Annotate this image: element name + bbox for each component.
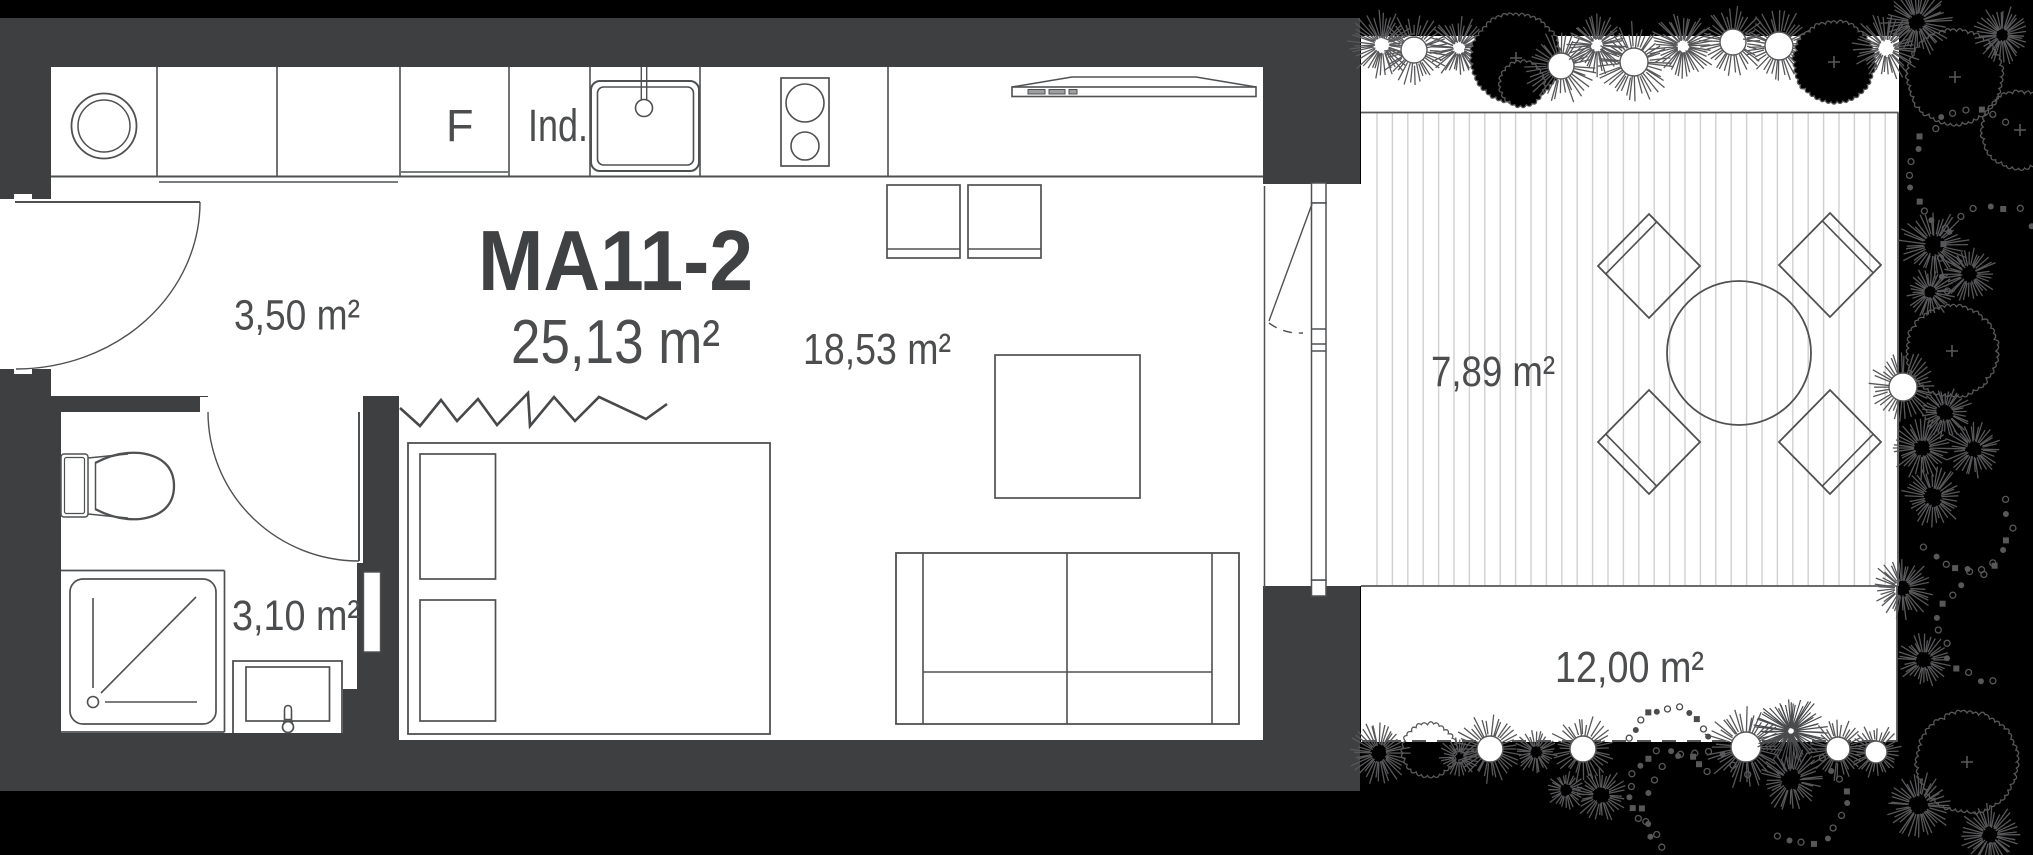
- svg-text:18,53 m²: 18,53 m²: [803, 325, 951, 374]
- svg-text:MA11-2: MA11-2: [478, 214, 753, 309]
- svg-text:7,89 m²: 7,89 m²: [1431, 348, 1555, 396]
- svg-text:3,10 m²: 3,10 m²: [232, 592, 360, 640]
- svg-text:12,00 m²: 12,00 m²: [1555, 643, 1704, 692]
- svg-text:F: F: [446, 100, 474, 151]
- svg-text:25,13 m²: 25,13 m²: [511, 308, 720, 377]
- svg-text:3,50 m²: 3,50 m²: [234, 292, 360, 340]
- svg-text:Ind.: Ind.: [528, 100, 588, 151]
